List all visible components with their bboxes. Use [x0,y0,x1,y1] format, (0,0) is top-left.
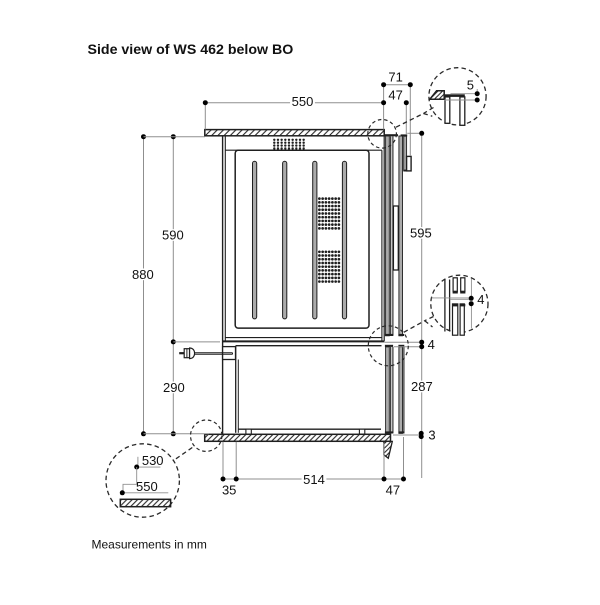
svg-text:550: 550 [136,479,158,494]
svg-text:35: 35 [222,482,236,497]
svg-text:3: 3 [428,428,435,443]
svg-text:530: 530 [142,453,164,468]
svg-text:290: 290 [163,380,185,395]
svg-text:Measurements in mm: Measurements in mm [92,537,207,551]
svg-text:287: 287 [411,379,433,394]
svg-text:71: 71 [388,70,402,85]
svg-text:5: 5 [467,77,474,92]
svg-text:550: 550 [292,94,314,109]
svg-text:590: 590 [162,228,184,243]
svg-text:47: 47 [388,88,402,103]
svg-text:514: 514 [303,472,325,487]
svg-text:4: 4 [428,337,435,352]
svg-text:4: 4 [477,292,484,307]
svg-text:Side view of WS 462 below BO: Side view of WS 462 below BO [88,42,294,58]
svg-text:880: 880 [132,267,154,282]
svg-text:47: 47 [386,482,400,497]
svg-text:595: 595 [410,226,432,241]
